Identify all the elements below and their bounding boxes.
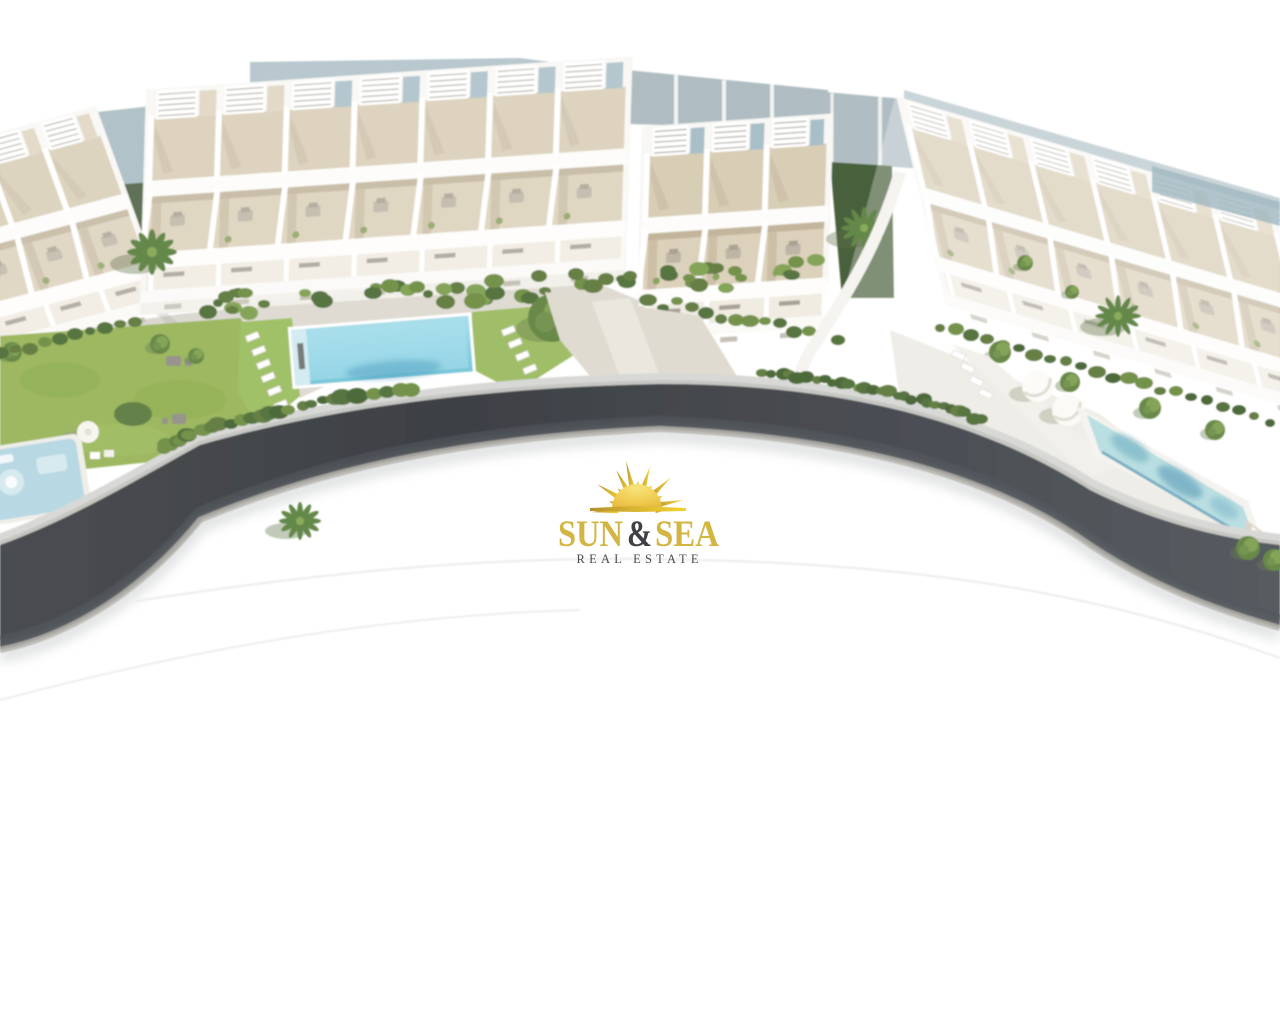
svg-text:REAL ESTATE: REAL ESTATE [577, 552, 704, 566]
svg-text:&: & [627, 514, 652, 555]
svg-text:SEA: SEA [655, 514, 719, 555]
svg-text:SUN: SUN [558, 514, 623, 555]
